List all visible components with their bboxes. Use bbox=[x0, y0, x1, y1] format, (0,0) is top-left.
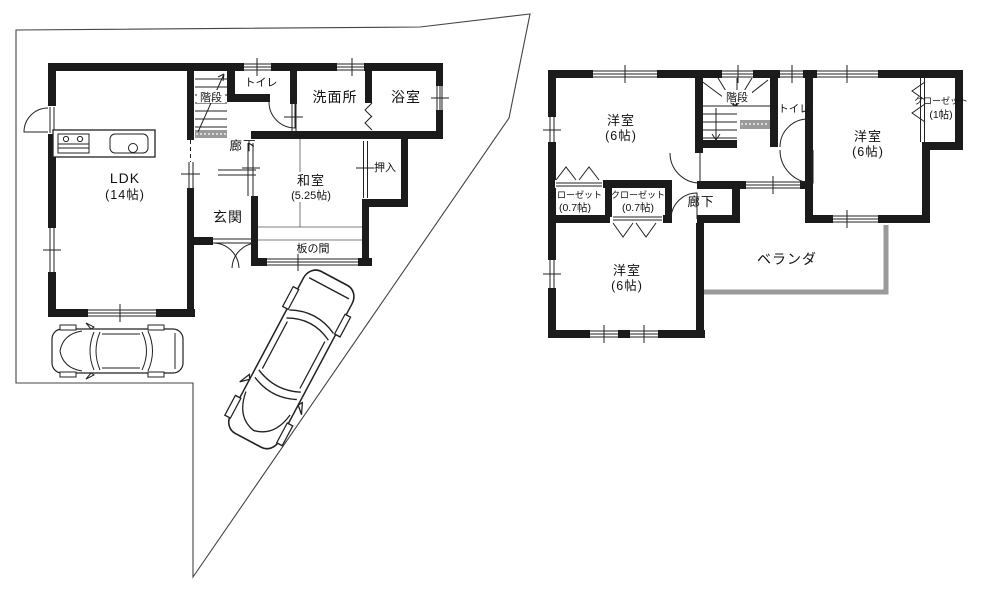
stair-down-arrow bbox=[712, 108, 720, 140]
closet-bifold-door bbox=[612, 215, 663, 237]
second-floor-stairs bbox=[700, 78, 770, 140]
room-label-hallway-1f: 廊下 bbox=[229, 138, 256, 153]
room-label-ldk: LDK bbox=[110, 170, 140, 186]
wall-segment bbox=[548, 215, 610, 223]
room-label-genkan: 玄関 bbox=[213, 209, 243, 225]
room-label-toilet-2f: トイレ bbox=[778, 103, 810, 115]
closet-e-size: (1帖) bbox=[929, 108, 952, 121]
wall-segment bbox=[365, 63, 372, 103]
room-label-itanoma: 板の間 bbox=[297, 241, 330, 255]
wall-segment bbox=[955, 70, 963, 150]
wall-segment bbox=[48, 63, 56, 317]
window bbox=[817, 65, 878, 83]
wall-segment bbox=[290, 63, 297, 104]
room-label-hallway-2f: 廊下 bbox=[687, 194, 714, 209]
wall-segment bbox=[362, 199, 369, 266]
window bbox=[780, 65, 803, 83]
wall-segment bbox=[251, 196, 258, 266]
room-size-washitsu: (5.25帖) bbox=[291, 189, 331, 202]
window bbox=[543, 260, 561, 288]
closet-bifold-door bbox=[912, 78, 925, 142]
window bbox=[543, 117, 561, 142]
kitchen-counter bbox=[53, 130, 155, 157]
window bbox=[593, 65, 657, 83]
wall-segment bbox=[922, 142, 930, 223]
window bbox=[43, 228, 61, 272]
room-label-yoshitsu-nw: 洋室 bbox=[607, 113, 635, 128]
floorplan-drawing: LDK (14帖) 階段 トイレ 洗面所 浴室 廊下 和室 (5.25帖) 玄関… bbox=[0, 0, 1000, 600]
wall-segment bbox=[187, 188, 194, 317]
wall-segment bbox=[732, 182, 740, 223]
room-label-stairs-2f: 階段 bbox=[726, 90, 748, 104]
room-size-yoshitsu-sw: (6帖) bbox=[611, 278, 643, 293]
window bbox=[833, 210, 878, 228]
wall-segment bbox=[696, 223, 704, 338]
wall-segment bbox=[700, 140, 737, 148]
toilet-door-arc bbox=[269, 102, 295, 128]
room-size-yoshitsu-nw: (6帖) bbox=[605, 128, 637, 143]
window bbox=[746, 176, 800, 194]
wall-segment bbox=[251, 131, 443, 139]
toilet-door-arc bbox=[780, 119, 808, 147]
room-size-yoshitsu-e: (6帖) bbox=[852, 144, 884, 159]
room-label-veranda: ベランダ bbox=[757, 251, 817, 267]
car-1 bbox=[52, 323, 183, 379]
genkan-step-lines bbox=[218, 170, 256, 175]
window bbox=[630, 325, 658, 343]
door-arc bbox=[24, 108, 48, 132]
window bbox=[590, 325, 618, 343]
room-size-ldk: (14帖) bbox=[105, 187, 145, 202]
closet-w1-label: クローゼット bbox=[548, 189, 602, 200]
wall-segment bbox=[805, 70, 813, 222]
room-label-washroom: 洗面所 bbox=[313, 89, 358, 105]
wall-segment bbox=[548, 70, 556, 338]
window bbox=[722, 65, 753, 83]
window bbox=[88, 304, 156, 322]
room-label-bathroom: 浴室 bbox=[391, 89, 421, 105]
first-floor-stairs bbox=[195, 74, 227, 138]
closet-bifold-door bbox=[555, 167, 603, 188]
first-floor-plan: LDK (14帖) 階段 トイレ 洗面所 浴室 廊下 和室 (5.25帖) 玄関… bbox=[24, 58, 449, 457]
room-label-stairs-1f: 階段 bbox=[200, 90, 222, 104]
stair-landing-hatch bbox=[195, 130, 227, 138]
wall-segment bbox=[401, 139, 408, 207]
wall-segment bbox=[187, 63, 194, 140]
first-floor-labels: LDK (14帖) 階段 トイレ 洗面所 浴室 廊下 和室 (5.25帖) 玄関… bbox=[105, 77, 421, 255]
room-label-toilet-1f: トイレ bbox=[245, 77, 278, 89]
closet-e-label: クローゼット bbox=[914, 95, 968, 106]
site-boundary bbox=[16, 14, 530, 577]
room-label-washitsu: 和室 bbox=[297, 173, 325, 188]
floorplan-page: LDK (14帖) 階段 トイレ 洗面所 浴室 廊下 和室 (5.25帖) 玄関… bbox=[0, 0, 1000, 600]
bathroom-folding-door bbox=[365, 103, 372, 130]
wall-segment bbox=[227, 94, 270, 102]
closet-w2-size: (0.7帖) bbox=[622, 201, 654, 214]
wall-segment bbox=[187, 237, 213, 245]
window bbox=[244, 58, 271, 76]
room-door-arc bbox=[670, 153, 700, 183]
closet-w2-label: クローゼット bbox=[611, 189, 665, 200]
wall-segment bbox=[770, 70, 778, 147]
back-door bbox=[24, 106, 56, 134]
window bbox=[267, 253, 358, 271]
room-label-oshiire: 押入 bbox=[374, 160, 396, 174]
room-label-yoshitsu-e: 洋室 bbox=[854, 129, 882, 144]
ldk-sliding-door bbox=[181, 162, 200, 189]
second-floor-walls bbox=[548, 70, 963, 338]
window bbox=[431, 86, 449, 110]
closet-w1-size: (0.7帖) bbox=[559, 201, 591, 214]
oshiire-sliding-door bbox=[356, 141, 374, 198]
wall-segment bbox=[548, 330, 705, 338]
stair-treads bbox=[700, 114, 737, 138]
second-floor-plan: 洋室 (6帖) 階段 トイレ クローゼット (1帖) 洋室 (6帖) クローゼッ… bbox=[543, 65, 968, 343]
window bbox=[337, 58, 364, 76]
room-label-yoshitsu-sw: 洋室 bbox=[613, 263, 641, 278]
